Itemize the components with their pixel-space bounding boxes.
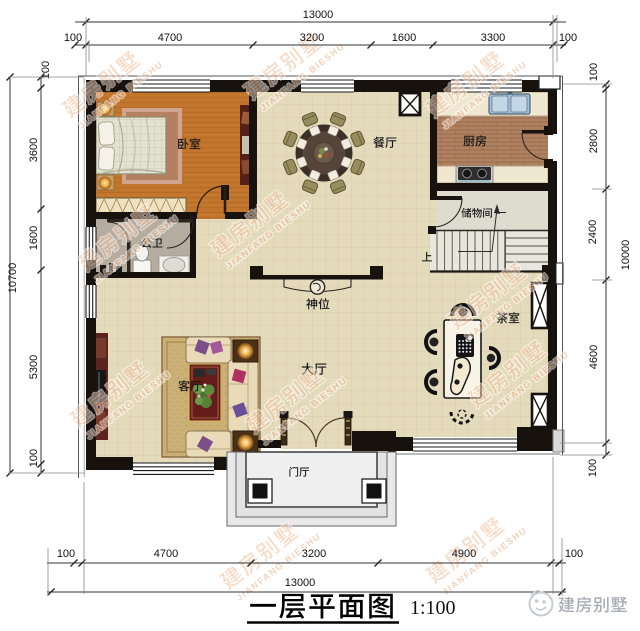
svg-text:4700: 4700 (158, 32, 182, 44)
svg-text:100: 100 (565, 548, 583, 560)
svg-text:10000: 10000 (620, 240, 632, 271)
svg-text:4600: 4600 (588, 345, 600, 369)
svg-text:1:100: 1:100 (410, 597, 456, 619)
svg-text:4900: 4900 (452, 548, 476, 560)
svg-text:10700: 10700 (7, 263, 19, 294)
svg-text:100: 100 (57, 548, 75, 560)
svg-text:3200: 3200 (302, 548, 326, 560)
svg-text:3300: 3300 (481, 32, 505, 44)
svg-text:3200: 3200 (300, 32, 324, 44)
svg-text:4700: 4700 (154, 548, 178, 560)
svg-text:2800: 2800 (588, 129, 600, 153)
svg-text:5300: 5300 (28, 355, 40, 379)
svg-text:100: 100 (588, 63, 600, 81)
svg-text:1600: 1600 (28, 226, 40, 250)
svg-text:100: 100 (28, 449, 40, 467)
svg-text:100: 100 (559, 32, 577, 44)
svg-text:100: 100 (40, 61, 52, 79)
svg-text:100: 100 (587, 459, 599, 477)
svg-text:2400: 2400 (587, 220, 599, 244)
svg-text:3600: 3600 (28, 138, 40, 162)
svg-text:1600: 1600 (392, 32, 416, 44)
svg-text:13000: 13000 (285, 577, 316, 589)
svg-text:13000: 13000 (303, 9, 334, 21)
svg-text:100: 100 (64, 32, 82, 44)
